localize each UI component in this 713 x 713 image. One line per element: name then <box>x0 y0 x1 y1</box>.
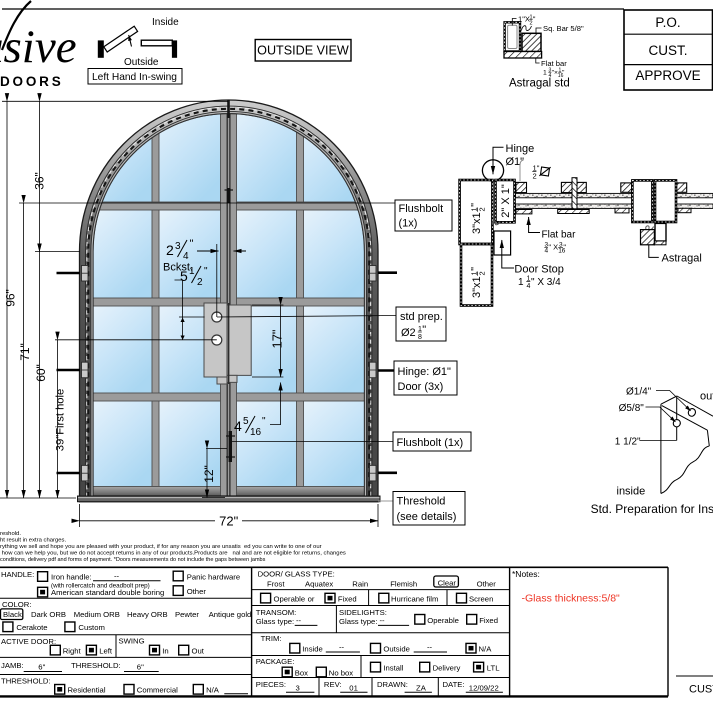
svg-text:" X 3/4: " X 3/4 <box>531 277 561 288</box>
svg-text:1 1/2": 1 1/2" <box>615 437 641 448</box>
svg-text:Ø5/8": Ø5/8" <box>619 403 645 414</box>
svg-text:": " <box>563 243 566 252</box>
svg-text:DATE:: DATE: <box>443 680 465 689</box>
svg-text:No box: No box <box>329 669 354 678</box>
svg-text:Hinge: Hinge <box>506 143 535 155</box>
svg-text:SWING: SWING <box>119 637 145 646</box>
svg-text:": " <box>422 324 426 336</box>
svg-text:" X: " X <box>548 243 558 252</box>
svg-text:01: 01 <box>349 684 358 693</box>
svg-text:3"x1: 3"x1 <box>471 276 483 298</box>
svg-text:Fixed: Fixed <box>479 616 498 625</box>
svg-text:--: -- <box>114 572 120 581</box>
svg-text:71": 71" <box>18 343 32 361</box>
svg-text:Std. Preparation for Installat: Std. Preparation for Installation <box>591 502 713 516</box>
svg-text:1: 1 <box>518 277 524 288</box>
svg-text:Screen: Screen <box>469 595 493 604</box>
svg-text:Medium ORB: Medium ORB <box>74 610 120 619</box>
svg-text:DOORS: DOORS <box>0 74 64 89</box>
svg-text:Flushbolt (1x): Flushbolt (1x) <box>397 437 464 449</box>
svg-text:Pewter: Pewter <box>175 610 199 619</box>
svg-text:conditions, delivery pdf and f: conditions, delivery pdf and forms of pa… <box>0 557 266 563</box>
svg-text:Other: Other <box>187 587 207 596</box>
svg-text:Out: Out <box>192 647 205 656</box>
svg-text:(see details): (see details) <box>397 511 457 523</box>
svg-text:3: 3 <box>175 241 181 252</box>
svg-text:LTL: LTL <box>487 664 500 673</box>
svg-text:PACKAGE:: PACKAGE: <box>256 657 295 666</box>
svg-text:1: 1 <box>189 266 195 277</box>
svg-text:Iron handle:: Iron handle: <box>51 573 92 582</box>
svg-text:39"First hole: 39"First hole <box>55 389 67 451</box>
svg-text:1: 1 <box>543 70 547 77</box>
svg-text:6": 6" <box>137 662 144 671</box>
svg-text:Astragal: Astragal <box>662 253 702 265</box>
svg-text:Residential: Residential <box>68 686 106 695</box>
svg-text:Flat bar: Flat bar <box>541 59 567 68</box>
svg-text:Black: Black <box>3 610 22 619</box>
svg-text:Left Hand In-swing: Left Hand In-swing <box>92 72 177 83</box>
svg-text:Dark ORB: Dark ORB <box>31 610 66 619</box>
svg-text:APPROVE: APPROVE <box>635 68 700 83</box>
svg-text:DRAWN:: DRAWN: <box>377 680 408 689</box>
svg-text:96": 96" <box>4 289 18 307</box>
svg-text:": " <box>537 164 540 173</box>
svg-text:Box: Box <box>295 669 308 678</box>
svg-text:American standard double borin: American standard double boring <box>51 588 164 597</box>
svg-text:THRESHOLD:: THRESHOLD: <box>1 677 51 686</box>
svg-text:60": 60" <box>34 364 48 382</box>
svg-text:PIECES:: PIECES: <box>256 680 286 689</box>
svg-text:2: 2 <box>478 207 487 211</box>
svg-text:--: -- <box>427 643 433 652</box>
svg-text:DOOR/ GLASS TYPE:: DOOR/ GLASS TYPE: <box>258 570 335 579</box>
svg-text:2: 2 <box>166 242 174 258</box>
svg-text:Glass type:: Glass type: <box>256 617 294 626</box>
svg-text:4: 4 <box>183 251 189 262</box>
svg-text:N/A: N/A <box>479 645 493 654</box>
svg-text:Fixed: Fixed <box>338 595 357 604</box>
svg-text:In: In <box>162 647 168 656</box>
svg-text:Ø1": Ø1" <box>506 156 525 168</box>
svg-text:Inside: Inside <box>302 645 323 654</box>
svg-text:Flushbolt: Flushbolt <box>399 203 444 215</box>
svg-text:2: 2 <box>197 277 203 288</box>
svg-text:Hinge: Ø1": Hinge: Ø1" <box>398 366 452 378</box>
svg-text:Panic hardware: Panic hardware <box>187 573 240 582</box>
svg-text:Operable: Operable <box>427 616 459 625</box>
svg-text:4: 4 <box>527 283 531 290</box>
svg-text:3: 3 <box>296 684 300 693</box>
svg-text:JAMB:: JAMB: <box>1 661 24 670</box>
svg-text:36": 36" <box>33 172 47 190</box>
svg-text:--: -- <box>296 616 302 625</box>
svg-text:--: -- <box>380 616 386 625</box>
svg-text:Astragal std: Astragal std <box>509 78 570 90</box>
svg-text:Ø1/4": Ø1/4" <box>626 387 652 398</box>
svg-text:": " <box>262 416 266 427</box>
svg-text:Inside: Inside <box>152 17 179 28</box>
svg-text:": " <box>562 70 565 77</box>
svg-text:2: 2 <box>478 271 487 275</box>
svg-text:Sq. Bar 5/8": Sq. Bar 5/8" <box>543 24 584 33</box>
svg-text:17": 17" <box>270 329 285 348</box>
svg-text:5: 5 <box>180 268 188 284</box>
svg-text:rything we sell and hope you a: rything we sell and hope you are pleased… <box>0 544 322 550</box>
svg-text:Glass type:: Glass type: <box>339 617 377 626</box>
svg-text:12": 12" <box>202 465 216 483</box>
svg-text:Operable: Operable <box>274 595 306 604</box>
svg-text:reshold.: reshold. <box>0 531 21 537</box>
svg-text:P.O.: P.O. <box>655 15 680 30</box>
svg-text:Cerakote: Cerakote <box>16 623 47 632</box>
svg-text:Left: Left <box>99 647 113 656</box>
svg-text:Hurricane film: Hurricane film <box>391 595 438 604</box>
svg-text:ht result in extra charges.: ht result in extra charges. <box>0 538 67 544</box>
svg-text:": " <box>470 267 482 271</box>
svg-text:ACTIVE DOOR:: ACTIVE DOOR: <box>1 637 56 646</box>
svg-text:Ø2: Ø2 <box>401 327 416 339</box>
svg-text:1"X: 1"X <box>518 15 530 24</box>
svg-text:2: 2 <box>533 172 537 181</box>
svg-text:THRESHOLD:: THRESHOLD: <box>71 661 121 670</box>
svg-text:": " <box>533 15 536 24</box>
svg-text:": " <box>470 203 482 207</box>
svg-text:Antique gold: Antique gold <box>209 610 252 619</box>
svg-text:Flemish: Flemish <box>390 579 417 588</box>
svg-text:Flat bar: Flat bar <box>542 230 577 241</box>
svg-text:-Glass thickness:5/8": -Glass thickness:5/8" <box>522 593 621 605</box>
svg-text:Door (3x): Door (3x) <box>398 381 444 393</box>
svg-text:CUST.: CUST. <box>648 43 687 58</box>
svg-text:REV:: REV: <box>324 680 342 689</box>
svg-text:Install: Install <box>383 664 403 673</box>
svg-text:Outside: Outside <box>124 57 159 68</box>
svg-text:how can we help you, but we do: how can we help you, but we do not accep… <box>0 551 346 557</box>
svg-text:COLOR:: COLOR: <box>2 600 31 609</box>
svg-text:3"x1: 3"x1 <box>471 212 483 234</box>
svg-text:*Notes:: *Notes: <box>512 569 540 579</box>
svg-text:Door Stop: Door Stop <box>514 264 564 276</box>
svg-text:5: 5 <box>243 416 249 427</box>
svg-text:4: 4 <box>234 418 242 434</box>
svg-text:Custom: Custom <box>78 623 105 632</box>
svg-text:": " <box>190 238 194 250</box>
svg-text:TRIM:: TRIM: <box>261 634 282 643</box>
svg-text:Delivery: Delivery <box>433 664 461 673</box>
svg-text:72": 72" <box>219 514 238 529</box>
svg-text:outside: outside <box>700 391 713 403</box>
svg-text:Other: Other <box>477 579 497 588</box>
svg-text:OUTSIDE VIEW: OUTSIDE VIEW <box>257 44 349 58</box>
svg-text:std prep.: std prep. <box>400 311 443 323</box>
svg-text:Threshold: Threshold <box>397 496 446 508</box>
svg-text:Aquatex: Aquatex <box>305 579 333 588</box>
svg-text:16: 16 <box>250 427 262 438</box>
svg-text:Rain: Rain <box>352 579 368 588</box>
svg-text:ZA: ZA <box>416 684 427 693</box>
svg-text:12/09/22: 12/09/22 <box>469 684 499 693</box>
svg-text:Commercial: Commercial <box>137 686 178 695</box>
svg-text:Heavy ORB: Heavy ORB <box>127 610 168 619</box>
svg-text:6": 6" <box>38 662 45 671</box>
svg-text:N/A: N/A <box>206 686 220 695</box>
svg-text:Right: Right <box>63 647 82 656</box>
svg-text:HANDLE:: HANDLE: <box>1 570 34 579</box>
svg-text:Outside: Outside <box>383 645 410 654</box>
svg-text:inside: inside <box>617 486 646 498</box>
svg-text:Clear: Clear <box>438 578 457 587</box>
svg-text:--: -- <box>339 643 345 652</box>
svg-text:": " <box>204 266 208 277</box>
svg-text:TRANSOM:: TRANSOM: <box>256 608 297 617</box>
svg-text:Frost: Frost <box>267 579 285 588</box>
svg-text:or: or <box>308 595 315 604</box>
svg-text:CUST: CUST <box>689 684 713 696</box>
svg-text:2" X 1": 2" X 1" <box>500 184 512 218</box>
svg-text:(1x): (1x) <box>399 218 418 230</box>
